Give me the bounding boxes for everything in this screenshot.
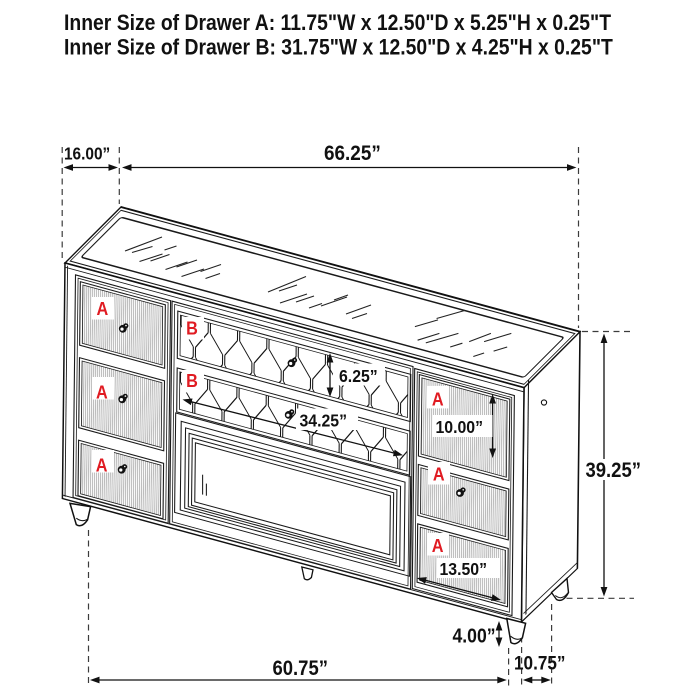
svg-text:A: A [432, 389, 444, 410]
svg-text:A: A [96, 454, 108, 475]
svg-text:B: B [186, 318, 198, 339]
svg-text:10.75”: 10.75” [514, 651, 566, 673]
svg-text:B: B [186, 370, 198, 391]
svg-text:39.25”: 39.25” [586, 459, 641, 482]
svg-text:Inner Size of Drawer B: 31.75": Inner Size of Drawer B: 31.75"W x 12.50"… [64, 35, 613, 59]
svg-text:A: A [96, 382, 108, 403]
svg-text:Inner Size of Drawer A: 11.75": Inner Size of Drawer A: 11.75"W x 12.50"… [64, 11, 611, 35]
svg-text:6.25”: 6.25” [339, 366, 378, 386]
svg-text:A: A [433, 463, 445, 484]
svg-text:13.50”: 13.50” [440, 559, 488, 579]
svg-text:A: A [97, 298, 109, 319]
svg-text:16.00”: 16.00” [64, 145, 110, 164]
svg-text:10.00”: 10.00” [436, 417, 484, 437]
svg-text:60.75”: 60.75” [273, 657, 328, 680]
svg-text:A: A [432, 535, 444, 556]
svg-text:4.00”: 4.00” [453, 624, 496, 646]
svg-text:34.25”: 34.25” [300, 410, 348, 430]
svg-text:66.25”: 66.25” [324, 142, 381, 165]
